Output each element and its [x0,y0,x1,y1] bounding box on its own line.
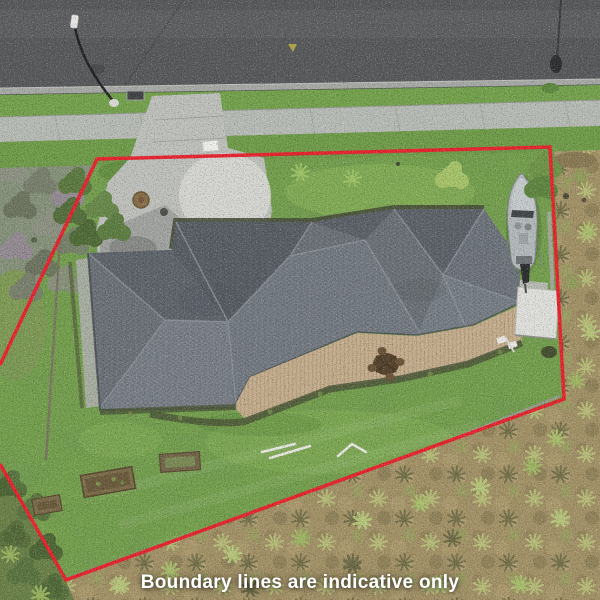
photo-grain-light [0,0,600,600]
aerial-property-photo: Boundary lines are indicative only [0,0,600,600]
boundary-disclaimer-text: Boundary lines are indicative only [0,572,600,594]
aerial-scene [0,0,600,600]
